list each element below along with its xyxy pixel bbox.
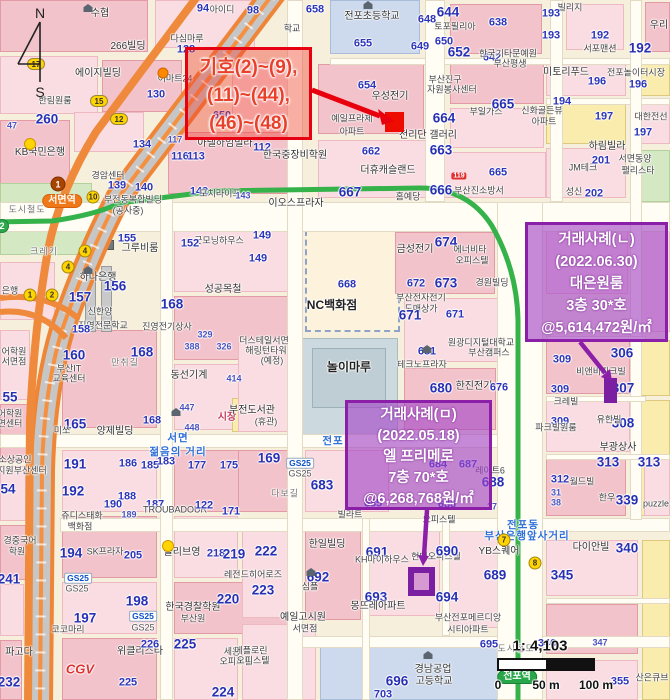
north-arrow: N S <box>6 2 76 102</box>
scale-ratio: 1: 4,103 <box>512 638 567 655</box>
annotation-arrows <box>0 0 670 700</box>
red-arrow-shaft <box>312 90 380 116</box>
scale-bar-graphic <box>497 658 595 671</box>
compass-diagonal <box>18 22 40 64</box>
compass-north-label: N <box>35 5 45 21</box>
purple-arrow-2-head <box>418 555 429 566</box>
annotations-layer: 기호(2)~(9),(11)~(44),(46)~(48) 거래사례(ㄴ)(20… <box>0 0 670 700</box>
compass-south-label: S <box>35 84 44 100</box>
scale-tick-100: 100 m <box>579 678 613 692</box>
scale-tick-0: 0 <box>495 678 502 692</box>
purple-arrow-2-shaft <box>424 510 427 556</box>
scale-tick-50: 50 m <box>532 678 559 692</box>
red-arrow-head <box>378 109 394 125</box>
scale-bar: 1: 4,103 0 50 m 100 m <box>480 640 650 695</box>
map-screenshot: 수협94아이디98658전포초등학교학교655266빌딩다심마루12864864… <box>0 0 670 700</box>
purple-arrow-1-shaft <box>580 342 605 373</box>
